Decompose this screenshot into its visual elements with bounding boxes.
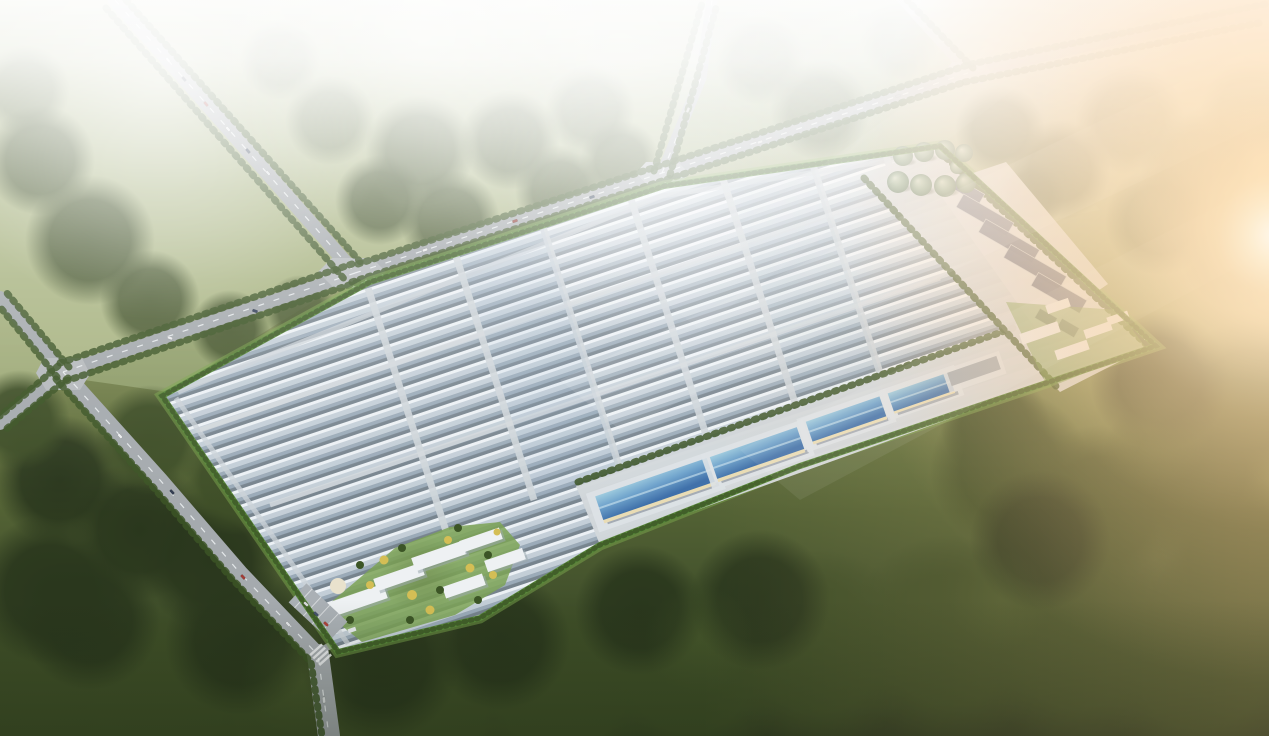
bottom-vignette xyxy=(0,600,1269,736)
atmosphere xyxy=(0,0,1269,736)
aerial-rendering: Aerial oblique rendering of a large rect… xyxy=(0,0,1269,736)
scene-svg: Aerial oblique rendering of a large rect… xyxy=(0,0,1269,736)
